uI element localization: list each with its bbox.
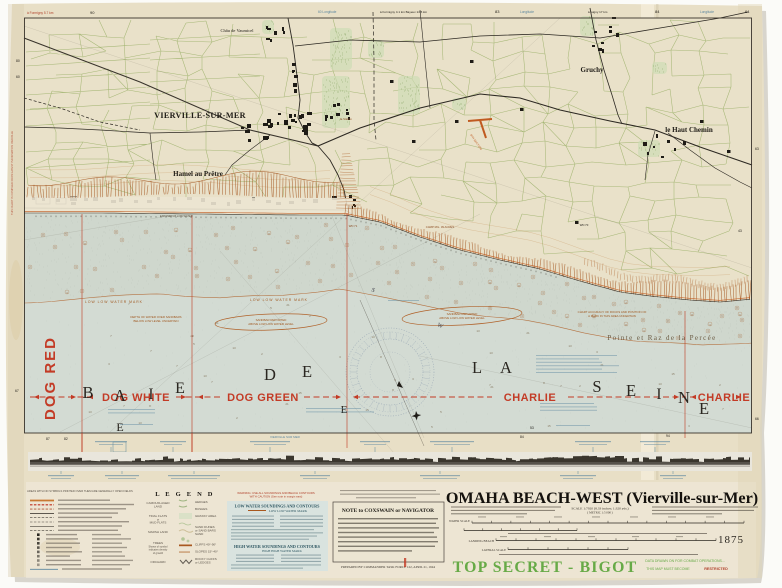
svg-text:LANDING BEACH: LANDING BEACH: [469, 539, 495, 543]
svg-text:VIERVILLE SUR MER: VIERVILLE SUR MER: [270, 435, 301, 439]
svg-text:of growth: of growth: [153, 552, 164, 555]
svg-text:I: I: [148, 386, 153, 403]
svg-text:OMAHA BEACH-WEST (Vierville-s: OMAHA BEACH-WEST (Vierville-sur-Mer): [446, 489, 758, 507]
svg-text:67: 67: [15, 389, 19, 393]
svg-text:WN 70: WN 70: [580, 223, 589, 227]
svg-text:60 Longitude: 60 Longitude: [318, 10, 337, 14]
svg-text:SAND: SAND: [195, 532, 204, 536]
svg-text:TIDAL FLATS: TIDAL FLATS: [149, 514, 167, 518]
svg-text:A: A: [500, 358, 512, 377]
svg-text:le Haut Chemin: le Haut Chemin: [665, 126, 713, 134]
svg-text:13: 13: [489, 351, 493, 355]
svg-text:AREAS WITH NO SYMBOLS PRINTED: AREAS WITH NO SYMBOLS PRINTED OVER THEM …: [27, 489, 133, 493]
svg-text:THIS CHART IS COMPILED FROM LA: THIS CHART IS COMPILED FROM LATEST INFOR…: [10, 131, 14, 215]
svg-text:87: 87: [46, 437, 50, 441]
svg-text:E: E: [341, 404, 348, 416]
svg-text:E: E: [116, 420, 123, 434]
svg-text:MARSH LAND: MARSH LAND: [148, 530, 169, 534]
svg-text:82: 82: [64, 437, 68, 441]
svg-text:LAND: LAND: [154, 505, 163, 509]
svg-text:( METRIC 1:5 000 ): ( METRIC 1:5 000 ): [587, 511, 612, 515]
svg-text:S: S: [592, 377, 601, 396]
svg-text:CLIFFS 40°-90°: CLIFFS 40°-90°: [195, 543, 217, 547]
svg-text:DATA DRAWN ON FOR COMBAT OPERA: DATA DRAWN ON FOR COMBAT OPERATIONS...: [645, 559, 724, 563]
svg-text:E: E: [175, 380, 185, 397]
svg-text:N: N: [678, 388, 690, 407]
svg-text:E: E: [626, 381, 636, 400]
svg-text:Gruchy: Gruchy: [581, 66, 604, 74]
svg-text:LOW LOW WATER MARK: LOW LOW WATER MARK: [85, 300, 143, 304]
svg-text:TREES: TREES: [153, 541, 163, 545]
svg-text:21: 21: [600, 363, 604, 367]
svg-text:MUD FLATS: MUD FLATS: [150, 521, 167, 525]
svg-text:à Formigny 4.1 km Bayeux 14: à Formigny 4.1 km Bayeux 14.5 km: [380, 10, 428, 14]
svg-text:CHARLIE: CHARLIE: [504, 392, 556, 404]
svg-text:13: 13: [232, 346, 236, 350]
svg-text:WATER SCALE: WATER SCALE: [449, 519, 470, 523]
svg-text:ABOVE LOW LOW WATER LEVEL: ABOVE LOW LOW WATER LEVEL: [248, 322, 294, 326]
svg-text:B: B: [82, 383, 93, 402]
svg-text:CAMP MIL. 39 ACRES: CAMP MIL. 39 ACRES: [426, 225, 455, 229]
svg-text:RESTRICTED: RESTRICTED: [704, 567, 728, 571]
svg-text:SLOPES 15°-40°: SLOPES 15°-40°: [195, 550, 219, 554]
svg-text:TOP SECRET - BIGOT: TOP SECRET - BIGOT: [453, 559, 638, 576]
svg-text:VIERVILLE-SUR-MER: VIERVILLE-SUR-MER: [154, 111, 246, 120]
svg-text:E: E: [302, 362, 312, 381]
svg-text:ABOVE LOW LOW WATER LEVEL: ABOVE LOW LOW WATER LEVEL: [439, 316, 485, 320]
svg-text:ORCHARD: ORCHARD: [150, 560, 166, 564]
svg-text:15: 15: [298, 391, 302, 395]
svg-text:A: A: [114, 386, 126, 405]
svg-text:DOG RED: DOG RED: [42, 336, 59, 420]
svg-text:21: 21: [215, 321, 219, 325]
svg-text:90: 90: [90, 10, 95, 15]
svg-text:BUSHES: BUSHES: [195, 507, 207, 511]
svg-text:la Station: la Station: [340, 117, 352, 121]
svg-text:13: 13: [476, 329, 480, 333]
svg-text:64: 64: [745, 9, 750, 14]
svg-text:BELOW LOW LEVEL UNCERTAIN: BELOW LOW LEVEL UNCERTAIN: [134, 319, 179, 323]
svg-text:Longitude: Longitude: [700, 10, 714, 14]
svg-text:LOW LOW WATER MARK: LOW LOW WATER MARK: [269, 509, 308, 513]
svg-text:53: 53: [530, 426, 534, 430]
svg-text:D: D: [264, 365, 276, 384]
svg-text:66: 66: [755, 417, 759, 421]
svg-text:Pointe et Raz de la Percée: Pointe et Raz de la Percée: [607, 334, 716, 342]
svg-text:L E G E N D: L E G E N D: [155, 491, 214, 498]
svg-text:Hamel au Prêtre: Hamel au Prêtre: [173, 170, 223, 178]
svg-text:DOG GREEN: DOG GREEN: [227, 392, 299, 404]
svg-text:I: I: [656, 386, 661, 403]
svg-text:LOW WATER SOUNDINGS AND CONTOU: LOW WATER SOUNDINGS AND CONTOURS: [235, 504, 320, 509]
svg-text:L: L: [472, 358, 482, 377]
svg-text:60: 60: [16, 75, 20, 79]
svg-text:43: 43: [738, 229, 742, 233]
svg-text:HIGH HIGH WATER MARK: HIGH HIGH WATER MARK: [262, 549, 302, 553]
svg-text:or LEDGES: or LEDGES: [195, 560, 211, 564]
svg-text:NOTE to COXSWAIN or NAVIGATOR: NOTE to COXSWAIN or NAVIGATOR: [342, 508, 434, 514]
svg-text:Longitude: Longitude: [520, 10, 534, 14]
svg-text:15: 15: [671, 372, 675, 376]
svg-text:15: 15: [547, 424, 551, 428]
svg-text:83: 83: [495, 9, 500, 14]
svg-text:Châu de Vaumicel: Châu de Vaumicel: [221, 28, 255, 33]
svg-text:WN 71: WN 71: [349, 224, 358, 228]
svg-text:LATERAL SCALE: LATERAL SCALE: [482, 548, 506, 552]
svg-text:13: 13: [568, 344, 572, 348]
svg-text:DOG WHITE: DOG WHITE: [102, 392, 170, 404]
svg-text:84: 84: [655, 9, 660, 14]
svg-text:EXPOSED AT LOW WATER: EXPOSED AT LOW WATER: [160, 214, 193, 218]
svg-text:21: 21: [526, 331, 530, 335]
svg-text:84: 84: [520, 435, 524, 439]
svg-text:63: 63: [755, 147, 759, 151]
svg-text:THIS MAP MUST BECOME: THIS MAP MUST BECOME: [646, 567, 690, 571]
svg-text:HEDGES: HEDGES: [195, 500, 208, 504]
svg-text:WITH CAUTION (See note in mar: WITH CAUTION (See note in margin east): [250, 495, 303, 499]
svg-text:LOW LOW WATER MARK: LOW LOW WATER MARK: [250, 298, 308, 302]
svg-text:21: 21: [490, 385, 494, 389]
svg-text:13: 13: [203, 374, 207, 378]
svg-text:à Formigny 5.7 km: à Formigny 5.7 km: [27, 11, 54, 15]
svg-text:à Isigny 17 km: à Isigny 17 km: [588, 10, 608, 14]
svg-text:E: E: [699, 399, 709, 418]
svg-text:21: 21: [286, 303, 290, 307]
svg-text:94: 94: [666, 434, 670, 438]
svg-text:80: 80: [16, 59, 20, 63]
svg-text:13: 13: [88, 410, 92, 414]
svg-text:GRASSY AREA: GRASSY AREA: [195, 514, 216, 518]
svg-text:1875: 1875: [718, 534, 744, 546]
